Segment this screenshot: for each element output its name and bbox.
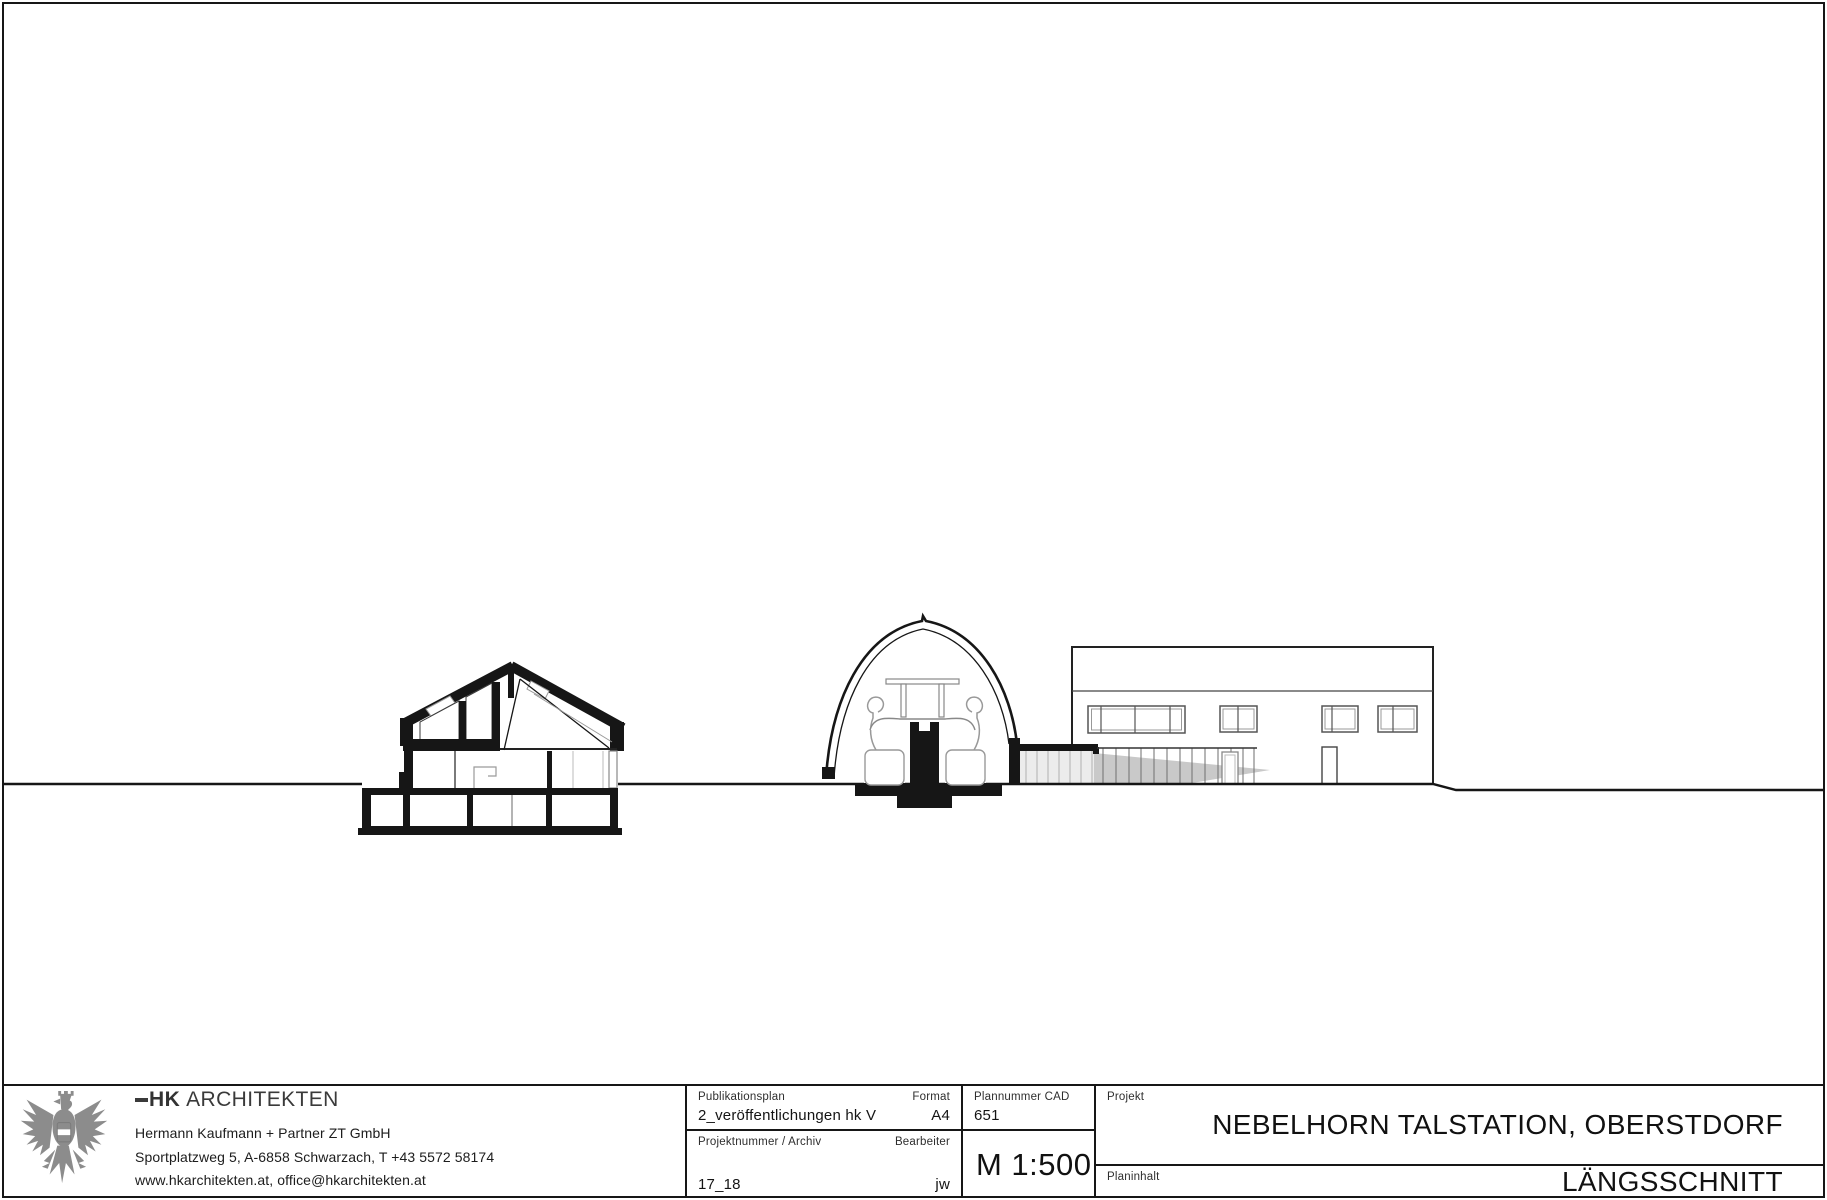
walkway-door <box>1222 752 1238 784</box>
projekt-value: NEBELHORN TALSTATION, OBERSTDORF <box>1096 1086 1825 1164</box>
house-wall-right <box>609 751 617 788</box>
house-door-detail <box>474 767 496 788</box>
house-ridge-post <box>508 670 514 698</box>
format-value: A4 <box>931 1107 950 1124</box>
architect-street-phone: Sportplatzweg 5, A-6858 Schwarzach, T +4… <box>135 1146 494 1170</box>
plan-info-column: Publikationsplan Format 2_veröffentlichu… <box>685 1086 961 1198</box>
house-attic-floor <box>403 739 500 751</box>
projektnummer-label: Projektnummer / Archiv <box>698 1136 821 1148</box>
section-drawing <box>0 0 1827 1200</box>
plannummer-label: Plannummer CAD <box>974 1091 1069 1103</box>
station-platform <box>886 679 959 684</box>
station-pier <box>910 722 939 784</box>
bearbeiter-value: jw <box>935 1176 950 1193</box>
station-arch-base-right <box>1009 738 1020 784</box>
house-eave-right <box>610 722 624 751</box>
station-pier-notch <box>919 722 930 731</box>
architect-logo: HKARCHITEKTEN <box>135 1087 494 1113</box>
house-attic-post <box>492 682 500 741</box>
plan-number-column: Plannummer CAD 651 M 1:500 <box>961 1086 1094 1198</box>
plan-sheet: HKARCHITEKTEN Hermann Kaufmann + Partner… <box>0 0 1827 1200</box>
gondola-cabin-left <box>865 750 904 785</box>
architect-section: HKARCHITEKTEN Hermann Kaufmann + Partner… <box>2 1086 685 1198</box>
publikationsplan-cell: Publikationsplan Format 2_veröffentlichu… <box>687 1086 961 1131</box>
station-foundation-pit <box>897 795 952 808</box>
cable-car-station <box>822 616 1020 808</box>
architect-company: Hermann Kaufmann + Partner ZT GmbH <box>135 1122 494 1146</box>
hk-logo-dash-icon <box>135 1098 148 1103</box>
planinhalt-cell: Planinhalt LÄNGSSCHNITT <box>1096 1166 1825 1198</box>
plannummer-cell: Plannummer CAD 651 <box>963 1086 1094 1131</box>
projekt-label: Projekt <box>1107 1091 1144 1103</box>
publikationsplan-value: 2_veröffentlichungen hk V <box>698 1107 876 1124</box>
station-platform-leg <box>901 684 906 717</box>
house-section <box>358 666 624 835</box>
projektnummer-value: 17_18 <box>698 1176 741 1193</box>
walkway-canopy <box>1018 744 1098 751</box>
title-block: HKARCHITEKTEN Hermann Kaufmann + Partner… <box>2 1084 1825 1198</box>
building-window <box>1322 706 1358 732</box>
planinhalt-label: Planinhalt <box>1107 1171 1160 1183</box>
project-column: Projekt NEBELHORN TALSTATION, OBERSTDORF… <box>1094 1086 1825 1198</box>
projekt-cell: Projekt NEBELHORN TALSTATION, OBERSTDORF <box>1096 1086 1825 1166</box>
plannummer-value: 651 <box>974 1107 1000 1124</box>
bearbeiter-label: Bearbeiter <box>895 1136 950 1148</box>
planinhalt-value: LÄNGSSCHNITT <box>1096 1166 1825 1198</box>
logo-architekten: ARCHITEKTEN <box>186 1088 339 1112</box>
gondola-cabin-right <box>946 750 985 785</box>
logo-hk: HK <box>149 1088 180 1112</box>
projektnummer-cell: Projektnummer / Archiv Bearbeiter 17_18 … <box>687 1131 961 1198</box>
building-door <box>1322 747 1337 784</box>
building-window <box>1378 706 1417 732</box>
house-roof-right <box>511 666 623 728</box>
architect-web-email: www.hkarchitekten.at, office@hkarchitekt… <box>135 1169 494 1193</box>
architect-logo-block: HKARCHITEKTEN Hermann Kaufmann + Partner… <box>135 1087 494 1193</box>
house-partition <box>547 751 552 788</box>
station-arch-base-left <box>822 767 835 779</box>
house-attic-mullion <box>459 701 466 741</box>
architect-address: Hermann Kaufmann + Partner ZT GmbH Sport… <box>135 1122 494 1193</box>
format-label: Format <box>912 1091 950 1103</box>
house-basement <box>358 788 622 835</box>
massstab-cell: M 1:500 <box>963 1131 1094 1198</box>
publikationsplan-label: Publikationsplan <box>698 1091 785 1103</box>
austrian-eagle-emblem <box>20 1090 108 1186</box>
scale-value: M 1:500 <box>963 1131 1094 1198</box>
house-wall-left-base <box>399 772 413 788</box>
station-platform-leg <box>939 684 944 717</box>
